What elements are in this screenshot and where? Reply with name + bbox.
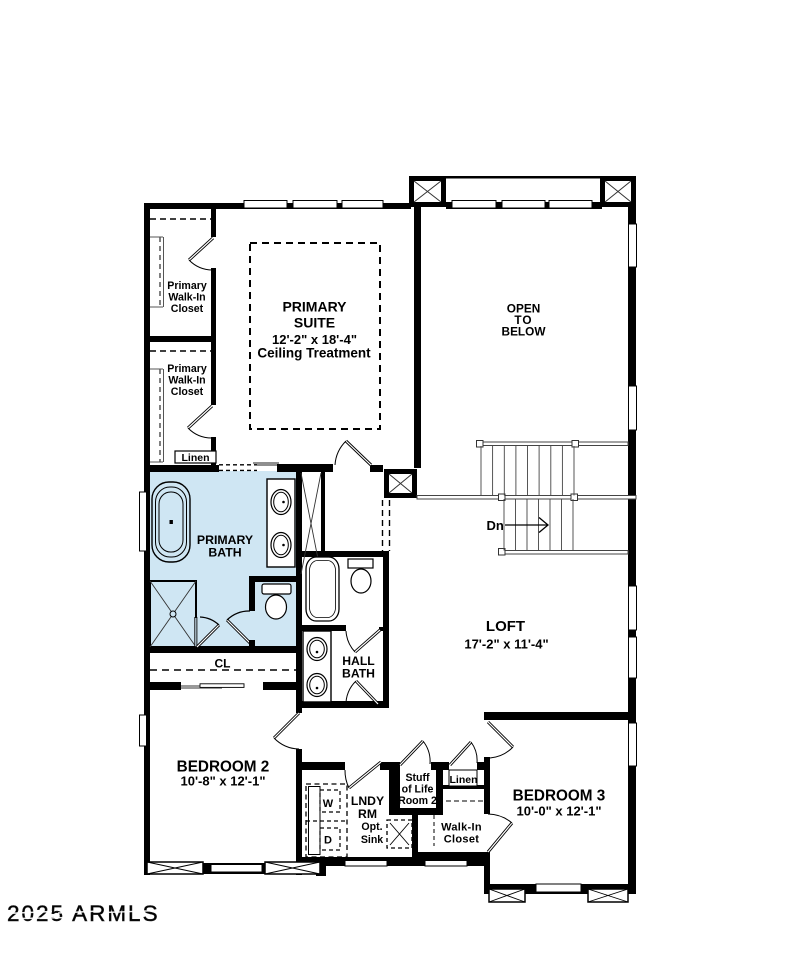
svg-text:Closet: Closet <box>444 834 479 846</box>
svg-text:BEDROOM 3: BEDROOM 3 <box>513 788 606 805</box>
svg-text:W: W <box>323 798 334 810</box>
svg-text:CL: CL <box>215 657 231 671</box>
svg-text:Dn: Dn <box>487 518 504 533</box>
svg-text:of Life: of Life <box>402 784 434 796</box>
svg-text:BATH: BATH <box>342 667 375 681</box>
svg-text:LOFT: LOFT <box>486 618 525 635</box>
svg-text:BATH: BATH <box>208 546 241 560</box>
svg-text:BELOW: BELOW <box>502 325 547 339</box>
svg-text:Sink: Sink <box>361 834 383 846</box>
svg-text:SUITE: SUITE <box>294 315 335 331</box>
svg-text:Linen: Linen <box>182 452 210 464</box>
svg-text:Ceiling Treatment: Ceiling Treatment <box>257 346 371 361</box>
svg-text:Primary: Primary <box>167 363 207 375</box>
svg-text:Opt.: Opt. <box>361 821 382 833</box>
svg-text:LNDY: LNDY <box>351 794 384 808</box>
svg-text:2025 ARMLS: 2025 ARMLS <box>7 901 160 926</box>
svg-text:Primary: Primary <box>167 280 207 292</box>
svg-text:17'-2" x 11'-4": 17'-2" x 11'-4" <box>464 637 548 652</box>
svg-text:Linen: Linen <box>450 774 478 786</box>
svg-text:D: D <box>324 835 332 847</box>
svg-text:10'-0" x 12'-1": 10'-0" x 12'-1" <box>516 804 601 819</box>
svg-text:PRIMARY: PRIMARY <box>282 299 347 315</box>
svg-text:Stuff: Stuff <box>405 772 430 784</box>
svg-text:Room 2: Room 2 <box>398 795 437 807</box>
svg-text:Walk-In: Walk-In <box>441 822 482 834</box>
svg-text:Closet: Closet <box>171 303 204 315</box>
svg-text:Closet: Closet <box>171 386 204 398</box>
svg-text:Walk-In: Walk-In <box>168 375 205 387</box>
svg-text:10'-8" x 12'-1": 10'-8" x 12'-1" <box>180 774 265 789</box>
svg-text:RM: RM <box>358 807 377 821</box>
svg-text:Walk-In: Walk-In <box>168 292 205 304</box>
